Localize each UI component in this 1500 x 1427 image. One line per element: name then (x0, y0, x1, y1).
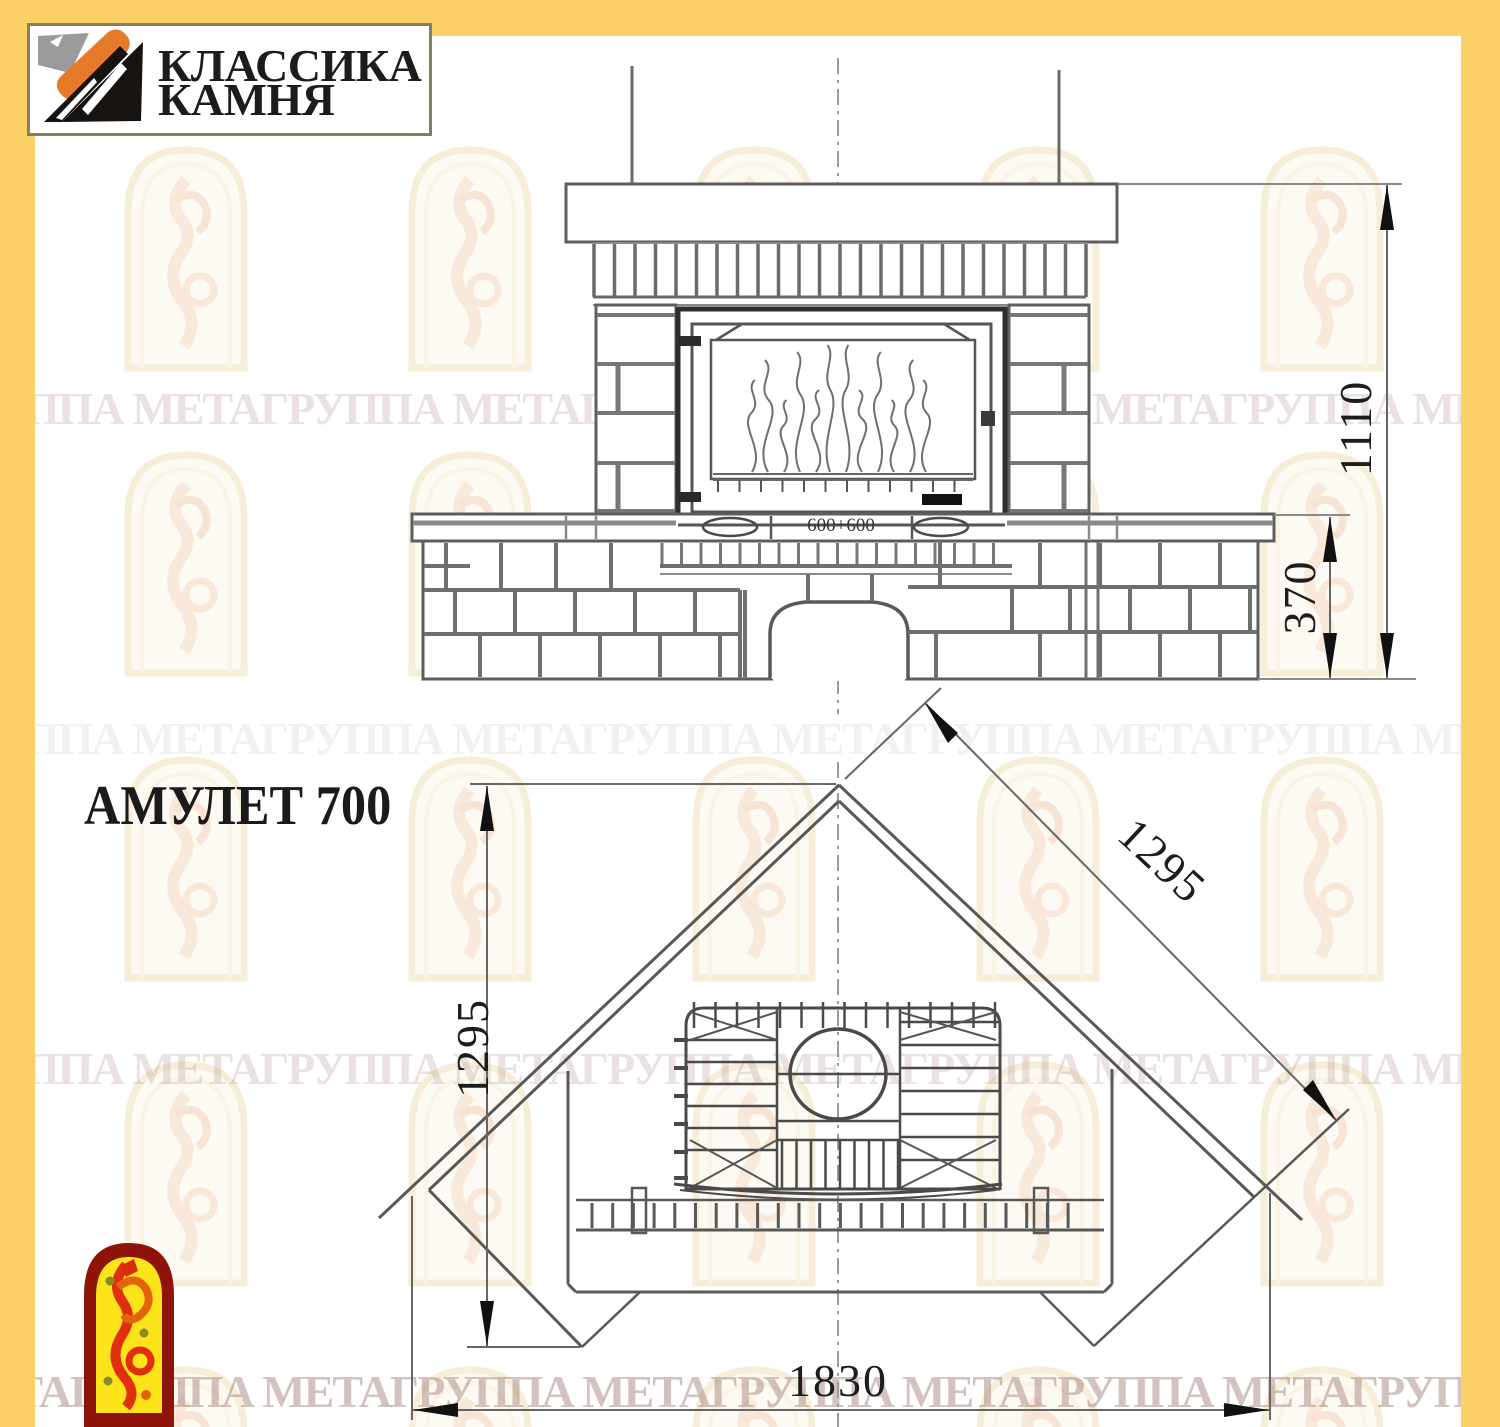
svg-text:КАМНЯ: КАМНЯ (158, 74, 335, 125)
svg-text:1295: 1295 (447, 998, 498, 1098)
svg-text:1830: 1830 (788, 1355, 888, 1406)
svg-text:370: 370 (1274, 560, 1325, 635)
svg-text:1295: 1295 (1109, 808, 1217, 913)
svg-text:1110: 1110 (1330, 380, 1381, 477)
svg-text:600+600: 600+600 (807, 515, 875, 536)
